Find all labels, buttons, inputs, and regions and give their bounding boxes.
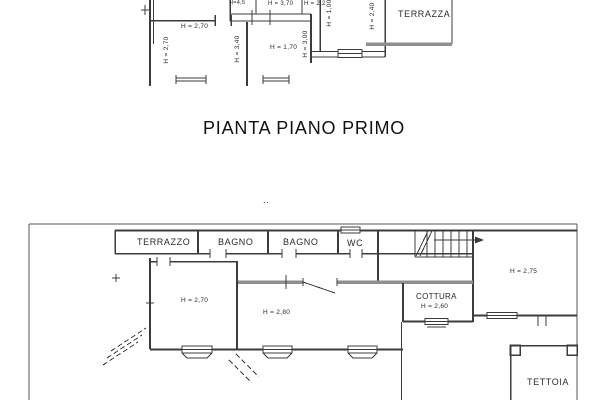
- room-label-tettoia: TETTOIA: [527, 378, 569, 387]
- height-label-300-vertical: H = 3,00: [303, 30, 310, 57]
- height-label-270-horizontal: H = 2,70: [181, 24, 208, 31]
- room-label-bagno-1: BAGNO: [218, 238, 254, 247]
- height-label-340-vertical: H = 3,40: [235, 35, 242, 62]
- room-label-wc: WC: [347, 239, 363, 248]
- ground-floor-plan: [29, 224, 577, 400]
- height-label-100-vertical: H = 1,00: [327, 0, 334, 27]
- height-label-260: H = 2,60: [421, 304, 448, 311]
- height-label-275: H = 2,75: [510, 269, 537, 276]
- height-label-280: H = 2,80: [263, 310, 290, 317]
- height-label-top-small: H=4,5: [229, 1, 245, 7]
- dots-mark: ..: [263, 196, 269, 205]
- height-label-270-vertical: H = 2,70: [164, 36, 171, 63]
- floor-plan-drawing: [0, 0, 600, 400]
- room-label-bagno-2: BAGNO: [283, 238, 319, 247]
- plan-title: PIANTA PIANO PRIMO: [203, 119, 405, 137]
- height-label-240-vertical: H = 2,40: [370, 2, 377, 29]
- height-label-170: H = 1,70: [270, 45, 297, 52]
- room-label-terrazza: TERRAZZA: [398, 10, 450, 19]
- room-label-cottura: COTTURA: [416, 293, 457, 301]
- room-label-terrazzo: TERRAZZO: [137, 238, 190, 247]
- height-label-270-bottom: H = 2,70: [181, 298, 208, 305]
- height-label-370: H = 3,70: [268, 1, 293, 7]
- floor-plan-page: H=4,5 H = 3,70 H = 2,2 H = 2,70 H = 2,70…: [0, 0, 600, 400]
- height-label-right-small: H = 2,2: [304, 1, 326, 7]
